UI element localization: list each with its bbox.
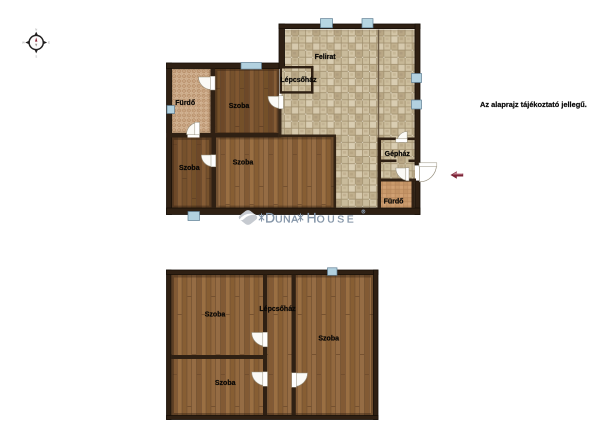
svg-text:Szoba: Szoba — [215, 380, 236, 387]
svg-text:Szoba: Szoba — [205, 311, 226, 318]
svg-text:Lépcsőház: Lépcsőház — [259, 306, 296, 313]
svg-text:N: N — [35, 28, 37, 32]
svg-text:W: W — [22, 41, 25, 45]
svg-text:Szoba: Szoba — [318, 336, 339, 343]
svg-text:Szoba: Szoba — [229, 103, 250, 110]
svg-text:Lépcsőház: Lépcsőház — [280, 77, 317, 84]
svg-text:E: E — [48, 41, 50, 45]
svg-text:Felirat: Felirat — [315, 54, 337, 61]
svg-text:Az alaprajz tájékoztató jelleg: Az alaprajz tájékoztató jellegű. — [480, 100, 587, 109]
svg-text:®: ® — [362, 209, 366, 216]
svg-text:Fürdő: Fürdő — [384, 198, 404, 205]
svg-text:Szoba: Szoba — [233, 159, 254, 166]
svg-text:Szoba: Szoba — [179, 165, 200, 172]
svg-text:Fürdő: Fürdő — [175, 100, 195, 107]
svg-text:Gépház: Gépház — [385, 151, 411, 158]
svg-text:S: S — [35, 54, 37, 58]
